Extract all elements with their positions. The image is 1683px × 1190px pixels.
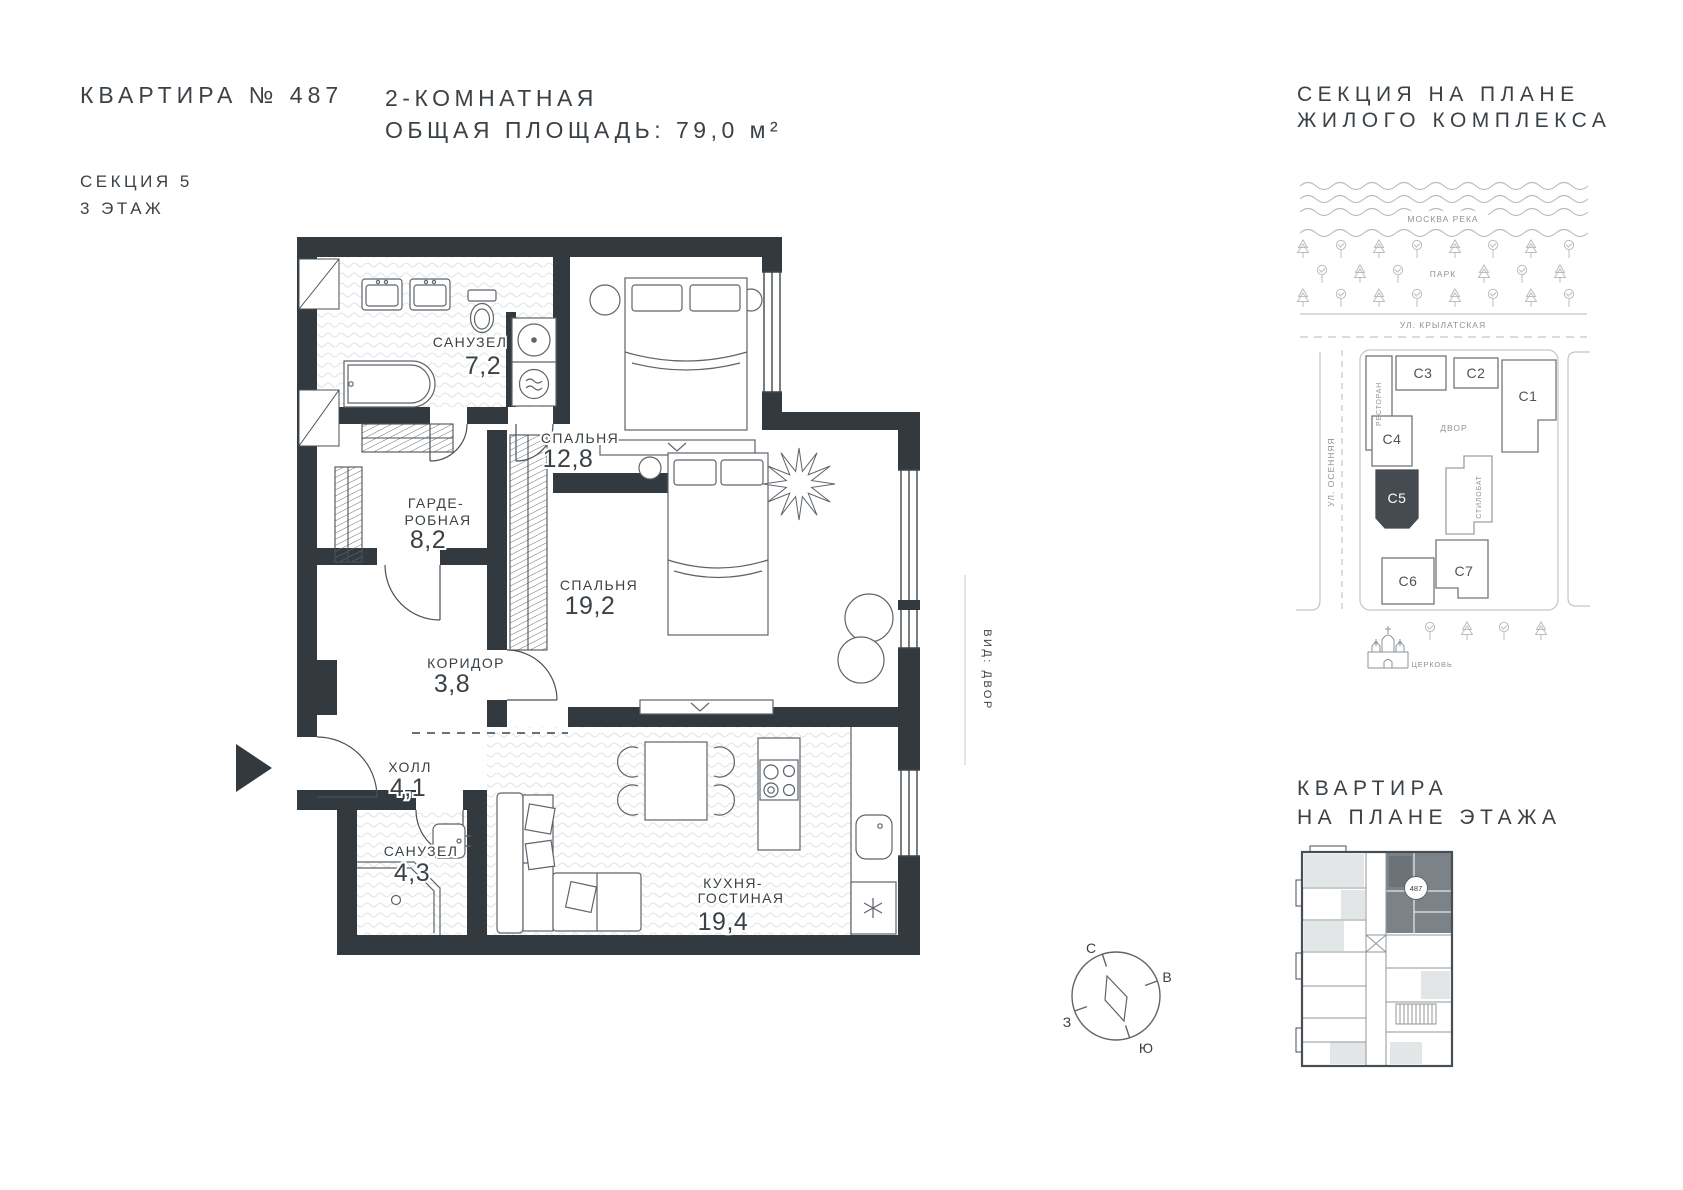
restaurant-label: РЕСТОРАН: [1376, 382, 1383, 426]
site-map: МОСКВА РЕКА ПАРК УЛ. КРЫЛАТСКАЯ УЛ. ОСЕН…: [1296, 183, 1590, 670]
room-bedroom2-name: СПАЛЬНЯ: [560, 577, 638, 593]
room-bath1-area: 7,2: [465, 352, 501, 380]
section-c3-label: С3: [1414, 365, 1433, 381]
bed-icon: [668, 453, 768, 635]
view-label: ВИД: ДВОР: [981, 629, 993, 711]
nightstand-icon: [639, 457, 661, 479]
room-bath1-name: САНУЗЕЛ: [433, 334, 508, 350]
section-c7-label: С7: [1455, 563, 1474, 579]
window-bedroom1: [762, 272, 782, 392]
section-c4-label: С4: [1383, 431, 1402, 447]
section-c6-label: С6: [1399, 573, 1418, 589]
armchair-icon: [845, 594, 893, 642]
plant-icon: [763, 448, 835, 520]
room-hall-name: ХОЛЛ: [388, 759, 432, 775]
church-icon: [1368, 626, 1408, 668]
bed-icon: [625, 278, 747, 430]
window-kitchen: [898, 770, 920, 856]
window-bedroom2: [898, 470, 920, 648]
compass-south: Ю: [1139, 1040, 1153, 1056]
sliding-door-icon: [640, 700, 773, 714]
main-floor-plan: САНУЗЕЛ 7,2 СПАЛЬНЯ 12,8 ГАРДЕ- РОБНАЯ 8…: [236, 237, 1172, 1056]
church-label: ЦЕРКОВЬ: [1411, 660, 1452, 669]
entrance-door: [317, 737, 377, 797]
street-left-label: УЛ. ОСЕННЯЯ: [1326, 437, 1336, 506]
bathtub-icon: [344, 361, 435, 407]
wardrobe-door: [385, 565, 440, 620]
armchair-icon: [838, 637, 884, 683]
bedroom2-furniture: [639, 448, 893, 714]
room-bath2-name: САНУЗЕЛ: [384, 843, 459, 859]
kitchen-sink-icon: [856, 815, 892, 859]
washer-dryer-icon: [512, 318, 556, 406]
drawing-canvas: САНУЗЕЛ 7,2 СПАЛЬНЯ 12,8 ГАРДЕ- РОБНАЯ 8…: [0, 0, 1683, 1190]
kitchen-island-icon: [758, 738, 800, 850]
nightstand-icon: [590, 285, 620, 315]
room-bedroom1-name: СПАЛЬНЯ: [541, 430, 619, 446]
building-c1: [1502, 360, 1556, 452]
floorplan-sheet: { "header": { "apartment": "КВАРТИРА № 4…: [0, 0, 1683, 1190]
building-stylobate: [1446, 456, 1492, 534]
room-corridor-name: КОРИДОР: [427, 655, 505, 671]
view-annotation: ВИД: ДВОР: [965, 575, 993, 765]
section-c5-label: С5: [1388, 490, 1407, 506]
room-bedroom2-area: 19,2: [565, 592, 616, 620]
church-trees: [1425, 622, 1546, 640]
room-kitchen-name2: ГОСТИНАЯ: [698, 890, 785, 906]
floor-overview-plan: 487: [1296, 846, 1452, 1066]
park-label: ПАРК: [1430, 269, 1456, 279]
room-kitchen-name1: КУХНЯ-: [703, 875, 763, 891]
section-c2-label: С2: [1467, 365, 1486, 381]
apartment-badge: 487: [1405, 877, 1428, 900]
room-bath2-area: 4,3: [394, 859, 430, 887]
courtyard-label: ДВОР: [1440, 423, 1467, 433]
stylobate-label: СТИЛОБАТ: [1476, 475, 1483, 518]
section-c1-label: С1: [1519, 388, 1538, 404]
apartment-badge-number: 487: [1410, 884, 1423, 893]
fridge-icon: [851, 882, 896, 934]
entrance-arrow-icon: [236, 744, 272, 792]
room-corridor-area: 3,8: [434, 670, 470, 698]
river-icon: [1300, 183, 1588, 237]
room-wardrobe-area: 8,2: [410, 526, 446, 554]
bedroom2-door: [507, 650, 557, 700]
compass-east: В: [1162, 969, 1171, 985]
compass-north: С: [1086, 940, 1096, 956]
room-hall-area: 4,1: [390, 774, 426, 802]
compass-icon: С В З Ю: [1063, 940, 1172, 1056]
compass-west: З: [1063, 1014, 1071, 1030]
room-kitchen-area: 19,4: [698, 908, 749, 936]
room-bedroom1-area: 12,8: [543, 445, 594, 473]
toilet-icon: [468, 290, 496, 333]
street-top-label: УЛ. КРЫЛАТСКАЯ: [1400, 320, 1486, 330]
room-wardrobe-name1: ГАРДЕ-: [408, 495, 464, 511]
river-label: МОСКВА РЕКА: [1407, 214, 1478, 224]
bedroom1-furniture: [590, 278, 762, 455]
